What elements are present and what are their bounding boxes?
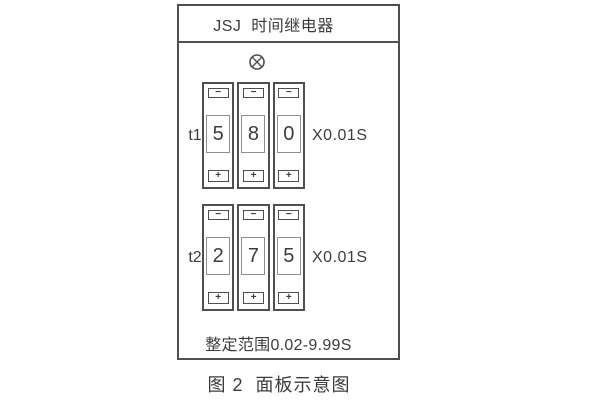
wheel-group-t2: − 2 + − 7 + − 5 +: [202, 204, 305, 311]
increment-button[interactable]: +: [243, 292, 264, 304]
digit-wheel-t1-units: − 0 +: [273, 82, 305, 189]
figure-caption: 图 2 面板示意图: [0, 371, 558, 397]
decrement-button[interactable]: −: [243, 88, 264, 98]
multiplier-label-t1: X0.01S: [312, 126, 392, 146]
decrement-button[interactable]: −: [278, 210, 299, 220]
digit-wheel-t2-units: − 5 +: [273, 204, 305, 311]
digit-wheel-t1-hundreds: − 5 +: [202, 82, 234, 189]
increment-button[interactable]: +: [278, 292, 299, 304]
multiplier-label-t2: X0.01S: [312, 248, 392, 268]
increment-button[interactable]: +: [278, 170, 299, 182]
increment-button[interactable]: +: [208, 170, 229, 182]
panel-title: JSJ 时间继电器: [213, 12, 334, 36]
digit-window: 2: [206, 237, 230, 275]
setting-range-text: 整定范围0.02-9.99S: [179, 331, 398, 355]
decrement-button[interactable]: −: [278, 88, 299, 98]
increment-button[interactable]: +: [208, 292, 229, 304]
digit-wheel-t2-hundreds: − 2 +: [202, 204, 234, 311]
digit-wheel-t2-tens: − 7 +: [237, 204, 269, 311]
panel-header: JSJ 时间继电器: [179, 6, 398, 43]
wheel-group-t1: − 5 + − 8 + − 0 +: [202, 82, 305, 189]
digit-wheel-t1-tens: − 8 +: [237, 82, 269, 189]
digit-window: 5: [206, 115, 230, 153]
figure-panel-schematic: JSJ 时间继电器 t1 − 5 + − 8 + − 0 +: [0, 0, 600, 400]
indicator-lamp-icon: [248, 53, 266, 71]
decrement-button[interactable]: −: [208, 88, 229, 98]
digit-window: 5: [277, 237, 301, 275]
decrement-button[interactable]: −: [208, 210, 229, 220]
digit-window: 7: [241, 237, 265, 275]
decrement-button[interactable]: −: [243, 210, 264, 220]
relay-front-panel: JSJ 时间继电器 t1 − 5 + − 8 + − 0 +: [177, 4, 400, 360]
increment-button[interactable]: +: [243, 170, 264, 182]
digit-window: 0: [277, 115, 301, 153]
digit-window: 8: [241, 115, 265, 153]
